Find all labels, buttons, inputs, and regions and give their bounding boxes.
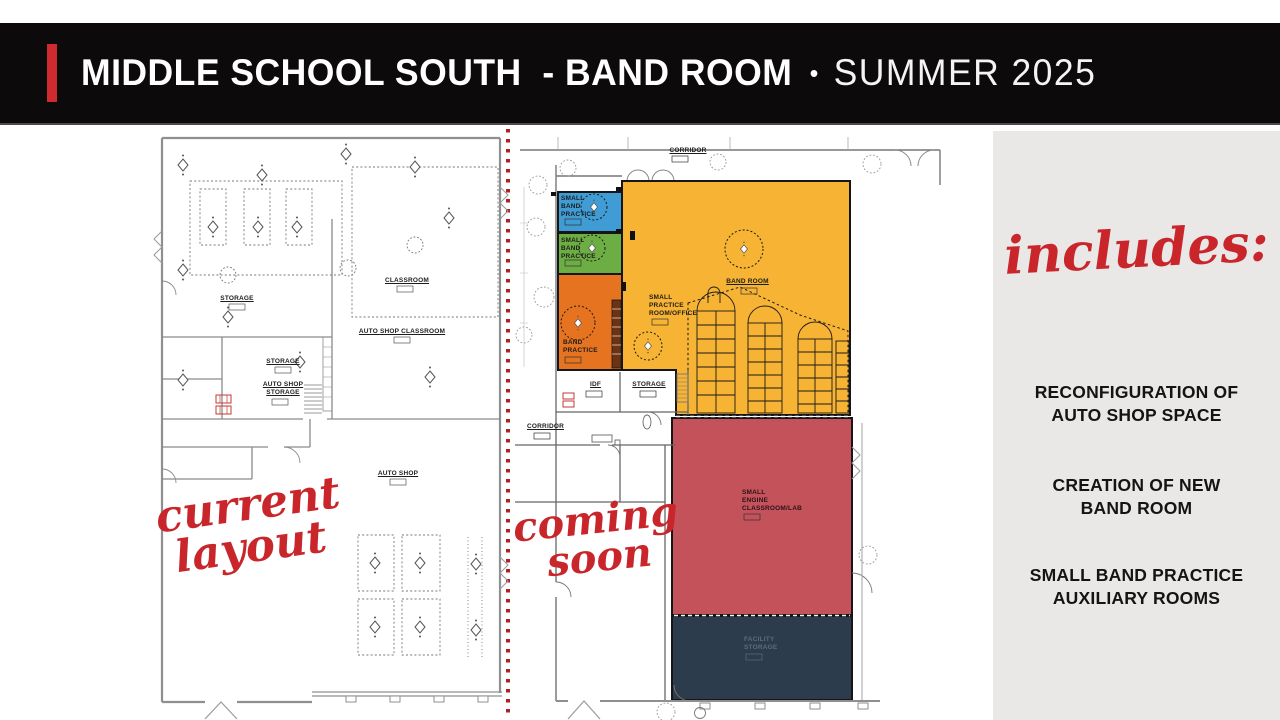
title-season: SUMMER 2025 [834, 52, 1097, 94]
list-item-reconfiguration: RECONFIGURATION OF AUTO SHOP SPACE [993, 381, 1280, 428]
room-label-auto-shop: AUTO SHOP [368, 470, 428, 478]
room-label-auto-shop-storage: AUTO SHOP STORAGE [253, 381, 313, 397]
title-bullet-separator: • [810, 58, 819, 89]
room-label-small-band-practice-1: SMALL BAND PRACTICE [561, 195, 596, 219]
red-accent-bar [47, 44, 57, 102]
room-label-storage-mid: STORAGE [258, 358, 308, 366]
room-label-small-band-practice-2: SMALL BAND PRACTICE [561, 237, 596, 261]
includes-panel: includes: RECONFIGURATION OF AUTO SHOP S… [993, 131, 1280, 720]
room-label-small-engine-classroom: SMALL ENGINE CLASSROOM/LAB [742, 489, 802, 513]
page-title: MIDDLE SCHOOL SOUTH - BAND ROOM • SUMMER… [81, 52, 1096, 94]
header-bar: MIDDLE SCHOOL SOUTH - BAND ROOM • SUMMER… [0, 23, 1280, 125]
right-floorplan [515, 137, 940, 720]
left-floorplan [154, 138, 508, 719]
room-label-corridor-top: CORRIDOR [658, 147, 718, 155]
includes-heading: includes: [992, 212, 1280, 288]
room-label-classroom: CLASSROOM [377, 277, 437, 285]
room-label-storage-upper: STORAGE [212, 295, 262, 303]
small-engine-classroom-red [672, 418, 852, 615]
room-label-auto-shop-classroom: AUTO SHOP CLASSROOM [342, 328, 462, 336]
room-label-facility-storage: FACILITY STORAGE [744, 636, 777, 652]
slide: { "header": { "title": "MIDDLE SCHOOL SO… [0, 0, 1280, 720]
list-item-practice-rooms: SMALL BAND PRACTICE AUXILIARY ROOMS [993, 564, 1280, 611]
room-label-corridor-left: CORRIDOR [523, 423, 568, 431]
room-label-band-room: BAND ROOM [715, 278, 780, 286]
room-label-idf: IDF [583, 381, 608, 389]
title-text: MIDDLE SCHOOL SOUTH - BAND ROOM [81, 52, 792, 94]
room-label-storage-right: STORAGE [629, 381, 669, 389]
list-item-new-band-room: CREATION OF NEW BAND ROOM [993, 474, 1280, 521]
room-label-band-practice: BAND PRACTICE [563, 339, 598, 355]
room-label-small-practice-office: SMALL PRACTICE ROOM/OFFICE [649, 294, 697, 318]
